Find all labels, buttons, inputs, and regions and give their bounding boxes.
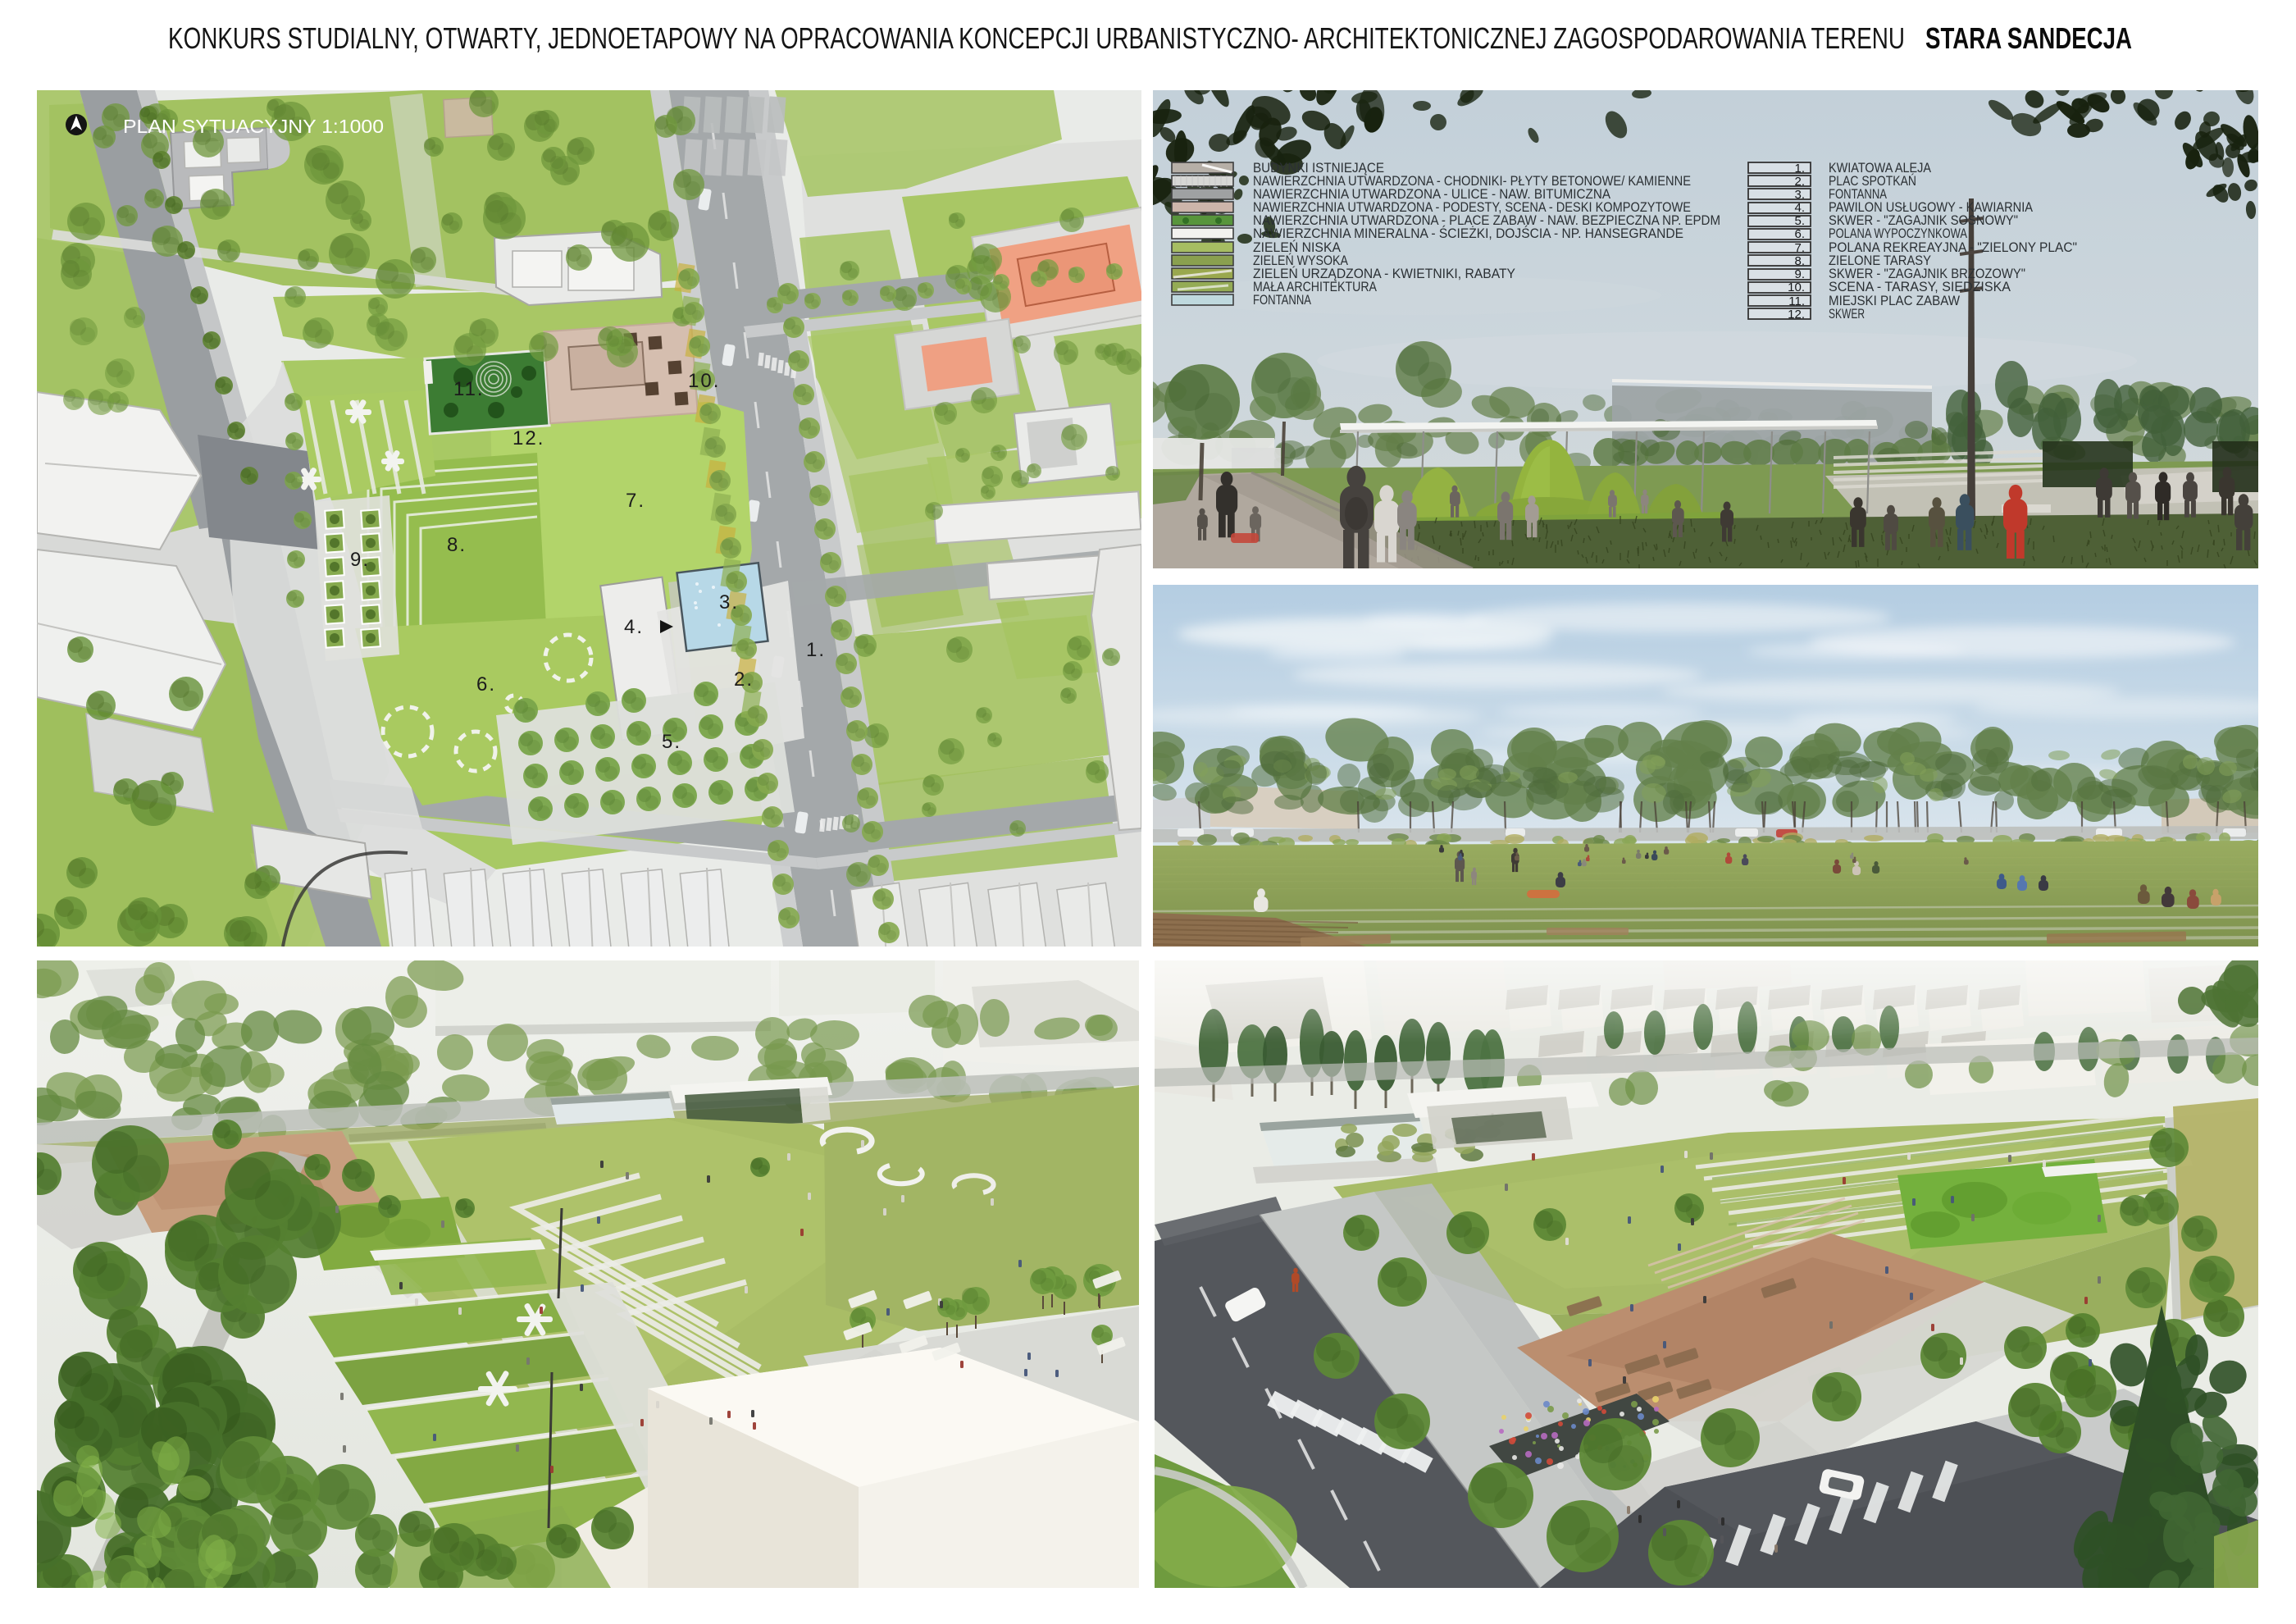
svg-text:1.: 1.	[806, 639, 826, 661]
svg-text:6.: 6.	[1794, 227, 1805, 241]
svg-text:10.: 10.	[1788, 281, 1805, 294]
svg-text:3.: 3.	[719, 591, 739, 614]
svg-text:3.: 3.	[1794, 188, 1805, 202]
svg-text:5.: 5.	[1794, 214, 1805, 228]
svg-text:SKWER: SKWER	[1829, 306, 1865, 322]
svg-text:7.: 7.	[1794, 241, 1805, 255]
svg-text:4.: 4.	[624, 616, 644, 638]
svg-text:11.: 11.	[1788, 294, 1805, 308]
svg-text:8.: 8.	[447, 534, 467, 556]
svg-text:9.: 9.	[350, 549, 370, 571]
svg-text:1.: 1.	[1794, 162, 1805, 176]
svg-text:11.: 11.	[453, 378, 485, 400]
svg-text:8.: 8.	[1794, 254, 1805, 268]
svg-text:4.: 4.	[1794, 201, 1805, 215]
svg-text:6.: 6.	[476, 673, 496, 696]
svg-text:PLAN SYTUACYJNY 1:1000: PLAN SYTUACYJNY 1:1000	[123, 116, 384, 137]
svg-text:12.: 12.	[1788, 308, 1805, 322]
svg-text:9.: 9.	[1794, 267, 1805, 281]
svg-text:FONTANNA: FONTANNA	[1253, 292, 1311, 308]
svg-text:7.: 7.	[626, 490, 645, 512]
svg-text:12.: 12.	[512, 427, 544, 449]
svg-text:KONKURS STUDIALNY, OTWARTY, JE: KONKURS STUDIALNY, OTWARTY, JEDNOETAPOWY…	[168, 21, 1905, 55]
svg-text:2.: 2.	[734, 668, 754, 691]
svg-text:2.: 2.	[1794, 175, 1805, 189]
svg-text:STARA SANDECJA: STARA SANDECJA	[1925, 21, 2132, 55]
svg-text:10.: 10.	[688, 370, 720, 392]
svg-text:5.: 5.	[662, 731, 681, 753]
